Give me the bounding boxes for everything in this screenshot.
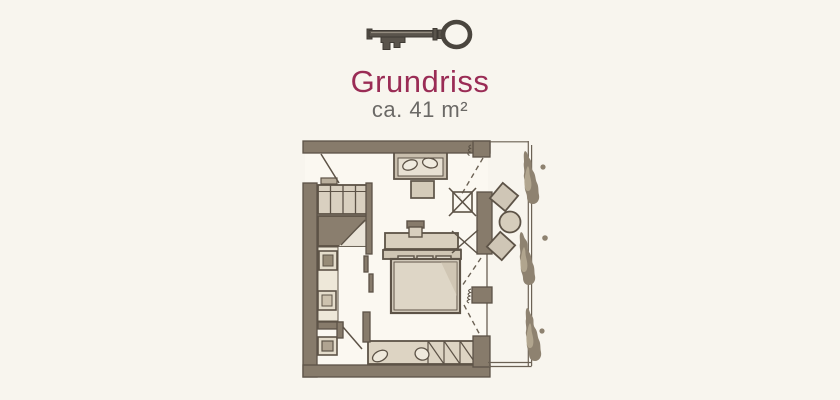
wardrobe-handle xyxy=(321,178,337,184)
balcony-round-table xyxy=(500,212,521,233)
key-shaft xyxy=(369,31,435,38)
toilet xyxy=(318,337,337,355)
floor-plan-svg xyxy=(296,132,558,384)
desk-chair xyxy=(407,221,424,237)
antique-key-icon xyxy=(365,17,475,53)
plant-2 xyxy=(520,232,548,285)
key-bit xyxy=(381,37,405,50)
wall-pillar-bottom-right xyxy=(473,336,490,367)
key-bow xyxy=(443,22,470,47)
wall-top xyxy=(303,141,490,153)
washbasin xyxy=(319,251,337,270)
wall-bottom xyxy=(303,365,490,377)
key-svg xyxy=(365,17,475,53)
shower xyxy=(318,216,368,246)
page: Grundriss ca. 41 m² xyxy=(0,0,840,400)
wall-pillar-top-right xyxy=(473,141,490,157)
bath-fixture xyxy=(318,291,336,310)
crossed-chair-mark xyxy=(449,188,476,216)
key-bow-joint xyxy=(440,32,444,36)
coffee-table xyxy=(411,181,434,198)
door-post-2 xyxy=(369,274,373,292)
sofa xyxy=(394,152,447,179)
partition-bath xyxy=(366,183,372,254)
window-pier-b xyxy=(472,287,492,303)
partition-bath-lower xyxy=(363,312,370,342)
page-title: Grundriss xyxy=(0,64,840,100)
area-label: ca. 41 m² xyxy=(0,97,840,123)
door-post-1 xyxy=(364,256,368,272)
key-collar-1 xyxy=(433,29,437,41)
bed xyxy=(383,250,461,313)
balcony-chair-1 xyxy=(490,183,518,211)
floor-plan xyxy=(296,132,558,384)
plant-1 xyxy=(524,151,546,204)
wall-left xyxy=(303,183,317,377)
wc-wall-stub xyxy=(337,322,343,338)
